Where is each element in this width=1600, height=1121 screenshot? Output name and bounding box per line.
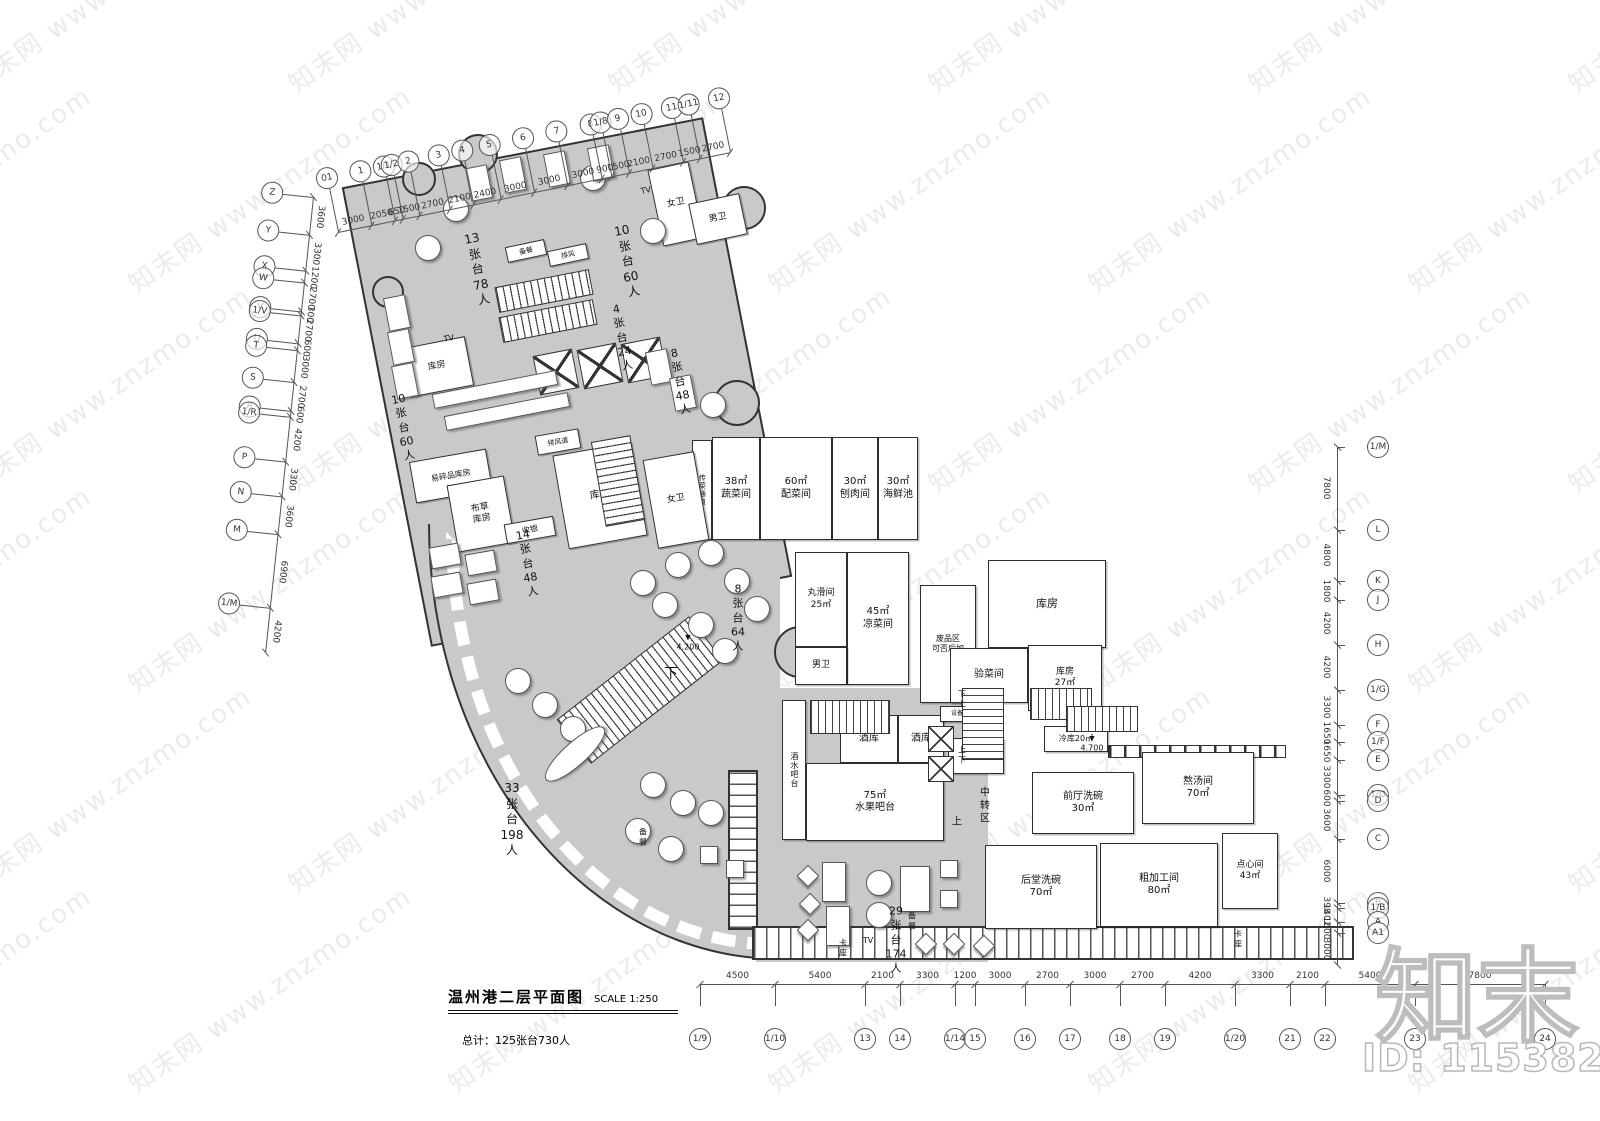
- table-r: [822, 862, 846, 902]
- grid-leader: [1337, 742, 1345, 743]
- plan-label: TV: [863, 936, 873, 946]
- room-seafood-pool: 30㎡ 海鲜池: [878, 437, 918, 540]
- plan-label: 备餐: [639, 828, 647, 849]
- room-garnish-room: 60㎡ 配菜间: [760, 437, 832, 540]
- table-c: [670, 790, 696, 816]
- room-back-dishwash: 后堂洗碗 70㎡: [985, 845, 1097, 929]
- watermark-text: 知末网 www.znzmo.com: [920, 0, 1218, 101]
- table-c: [640, 218, 666, 244]
- room-front-dishwash: 前厅洗碗 30㎡: [1032, 772, 1134, 834]
- dimension-value: 4200: [1321, 611, 1331, 634]
- room-storage-upper-right: 库房: [988, 560, 1106, 648]
- watermark-text: 知末网 www.znzmo.com: [0, 676, 258, 900]
- table-c: [532, 692, 558, 718]
- watermark-text: 知末网 www.znzmo.com: [1560, 676, 1600, 900]
- dimension-value: 3300: [1251, 971, 1274, 981]
- plan-label: 备餐: [908, 912, 916, 933]
- site-logo: 知末: [1375, 948, 1579, 1050]
- dimension-value: 2100: [1296, 971, 1319, 981]
- grid-leader: [975, 984, 976, 1006]
- dimension-value: 7800: [1321, 477, 1331, 500]
- title-underline-2: [448, 1013, 678, 1014]
- grid-leader: [1025, 984, 1026, 1006]
- plan-label: TV: [640, 185, 652, 197]
- dimension-value: 4200: [1321, 656, 1331, 679]
- dimension-value: 1800: [1321, 579, 1331, 602]
- image-id-label: ID: 1153825906: [1362, 1036, 1600, 1080]
- dimension-value: 5400: [809, 971, 832, 981]
- watermark-text: 知末网 www.znzmo.com: [1240, 276, 1538, 500]
- grid-leader: [1337, 839, 1345, 840]
- plan-label: 4.200: [677, 633, 700, 654]
- grid-leader: [700, 984, 701, 1006]
- grid-bubble: J: [1367, 589, 1389, 611]
- grid-leader: [1337, 725, 1345, 726]
- dimension-value: 600: [300, 339, 312, 357]
- dimension-value: 3000: [1321, 938, 1331, 961]
- dimension-value: 2700: [1036, 971, 1059, 981]
- watermark-text: 知末网 www.znzmo.com: [280, 0, 578, 101]
- grid-bubble: 13: [854, 1028, 876, 1050]
- grid-leader: [1337, 933, 1345, 934]
- grid-leader: [1325, 984, 1326, 1006]
- table-c: [652, 592, 678, 618]
- dimension-value: 600: [1321, 789, 1331, 806]
- grid-leader: [1337, 581, 1345, 582]
- dimension-value: 1000: [1321, 916, 1331, 939]
- plan-label: 上 下: [958, 746, 966, 767]
- plan-label: 上: [952, 816, 962, 829]
- drawing-title: 温州港二层平面图: [448, 988, 584, 1006]
- dimension-value: 6000: [1321, 860, 1331, 883]
- table-c: [744, 596, 770, 622]
- watermark-text: 知末网 www.znzmo.com: [1240, 0, 1538, 101]
- table-c: [625, 818, 651, 844]
- plan-label: 中转区: [980, 787, 990, 826]
- table-c: [630, 570, 656, 596]
- dimension-value: 4800: [1321, 544, 1331, 567]
- watermark-text: 知末网 www.znzmo.com: [1080, 476, 1378, 700]
- dimension-value: 2700: [1131, 971, 1154, 981]
- table-c: [658, 836, 684, 862]
- grid-leader: [1337, 908, 1345, 909]
- watermark-text: 知末网 www.znzmo.com: [0, 0, 258, 101]
- grid-bubble: 1/20: [1224, 1028, 1246, 1050]
- room-mens-toilet-kitchen: 男卫: [795, 647, 847, 685]
- room-vegetable-room: 38㎡ 蔬菜间: [712, 437, 760, 540]
- plan-label: 29张台 174人: [886, 904, 907, 975]
- watermark-text: 知末网 www.znzmo.com: [1240, 676, 1538, 900]
- dimension-value: 1650: [1321, 739, 1331, 762]
- watermark-text: 知末网 www.znzmo.com: [600, 0, 898, 101]
- table-c: [698, 540, 724, 566]
- grid-leader: [955, 984, 956, 1006]
- table-c: [415, 235, 441, 261]
- room-meatball-room: 丸滑间 25㎡: [795, 552, 847, 647]
- grid-line: [1337, 447, 1338, 965]
- grid-bubble: 1/14: [944, 1028, 966, 1050]
- table-c: [505, 668, 531, 694]
- room-rough-processing: 粗加工间 80㎡: [1100, 843, 1218, 927]
- grid-leader: [775, 984, 776, 1006]
- dimension-value: 3000: [1084, 971, 1107, 981]
- table-q: [940, 860, 958, 878]
- grid-bubble: 16: [1014, 1028, 1036, 1050]
- elevator-shaft: [928, 726, 954, 752]
- table-c: [665, 552, 691, 578]
- stair: [810, 700, 890, 734]
- drawing-scale: SCALE 1:250: [594, 994, 658, 1005]
- stair: [1066, 706, 1138, 732]
- grid-bubble: 17: [1059, 1028, 1081, 1050]
- table-q: [700, 846, 718, 864]
- dimension-value: 4200: [1189, 971, 1212, 981]
- grid-leader: [1337, 922, 1345, 923]
- title-underline: [448, 1010, 678, 1011]
- grid-leader: [1337, 600, 1345, 601]
- grid-bubble: 1/M: [1367, 436, 1389, 458]
- grid-bubble: E: [1367, 749, 1389, 771]
- grid-leader: [1235, 984, 1236, 1006]
- plan-label: 下: [664, 665, 678, 683]
- grid-bubble: 14: [889, 1028, 911, 1050]
- grid-bubble: 15: [964, 1028, 986, 1050]
- table-q: [726, 860, 744, 878]
- grid-leader: [1120, 984, 1121, 1006]
- dimension-value: 3300: [1321, 696, 1331, 719]
- stair: [962, 688, 1004, 760]
- total-count-note: 总计：125张台730人: [462, 1032, 678, 1048]
- watermark-text: 知末网 www.znzmo.com: [1560, 0, 1600, 101]
- table-c: [698, 800, 724, 826]
- room-drinks-bar: 酒水吧台: [782, 700, 806, 840]
- watermark-text: 知末网 www.znzmo.com: [120, 876, 418, 1100]
- watermark-text: 知末网 www.znzmo.com: [0, 76, 98, 300]
- dimension-value: 3000: [989, 971, 1012, 981]
- grid-leader: [1337, 795, 1345, 796]
- grid-leader: [1337, 801, 1345, 802]
- watermark-text: 知末网 www.znzmo.com: [1080, 76, 1378, 300]
- plan-label: 卡座: [1234, 930, 1242, 951]
- dimension-value: 2100: [871, 971, 894, 981]
- plan-label: 33张台 198人: [501, 781, 524, 859]
- dimension-value: 600: [293, 405, 305, 423]
- watermark-text: 知末网 www.znzmo.com: [1400, 76, 1600, 300]
- grid-bubble: 21: [1279, 1028, 1301, 1050]
- grid-leader: [1337, 690, 1345, 691]
- room-fruit-bar: 75㎡ 水果吧台: [806, 763, 944, 841]
- room-pastry-room: 点心间 43㎡: [1222, 833, 1278, 909]
- dimension-value: 3300: [916, 971, 939, 981]
- grid-leader: [1290, 984, 1291, 1006]
- grid-leader: [1337, 760, 1345, 761]
- plan-label: 4.700: [1081, 734, 1104, 755]
- elevator-shaft: [928, 756, 954, 782]
- grid-bubble: 1/10: [764, 1028, 786, 1050]
- grid-bubble: 1/9: [689, 1028, 711, 1050]
- watermark-text: 知末网 www.znzmo.com: [0, 276, 258, 500]
- table-q: [940, 890, 958, 908]
- grid-bubble: 18: [1109, 1028, 1131, 1050]
- grid-leader: [1337, 530, 1345, 531]
- cad-drawing-canvas: 知末网 www.znzmo.com知末网 www.znzmo.com知末网 ww…: [0, 0, 1600, 1121]
- grid-bubble: H: [1367, 634, 1389, 656]
- table-c: [700, 392, 726, 418]
- watermark-text: 知末网 www.znzmo.com: [0, 476, 98, 700]
- grid-bubble: 22: [1314, 1028, 1336, 1050]
- plan-label: 8张台 64人: [731, 582, 745, 653]
- room-cold-dish-room: 45㎡ 凉菜间: [847, 552, 909, 685]
- room-meat-slicing-room: 30㎡ 刨肉间: [832, 437, 878, 540]
- dimension-value: 4500: [726, 971, 749, 981]
- grid-leader: [1337, 645, 1345, 646]
- plan-label: 卡座: [839, 939, 847, 960]
- railed-walkway: [728, 770, 758, 930]
- watermark-text: 知末网 www.znzmo.com: [120, 476, 418, 700]
- plan-label: TV: [443, 333, 455, 345]
- grid-leader: [1070, 984, 1071, 1006]
- watermark-text: 知末网 www.znzmo.com: [1400, 476, 1600, 700]
- grid-bubble: 19: [1154, 1028, 1176, 1050]
- table-c: [640, 772, 666, 798]
- room-linen-storage: 布草 库房: [447, 475, 516, 552]
- dimension-value: 3600: [1321, 809, 1331, 832]
- table-c: [866, 870, 892, 896]
- watermark-text: 知末网 www.znzmo.com: [760, 76, 1058, 300]
- grid-leader: [1165, 984, 1166, 1006]
- grid-bubble: L: [1367, 519, 1389, 541]
- room-soup-room: 熬汤间 70㎡: [1142, 752, 1254, 824]
- dimension-value: 1200: [954, 971, 977, 981]
- plan-label: 下 上: [958, 690, 966, 711]
- watermark-text: 知末网 www.znzmo.com: [0, 876, 98, 1100]
- grid-leader: [900, 984, 901, 1006]
- title-block: 温州港二层平面图SCALE 1:250 总计：125张台730人: [448, 986, 678, 1048]
- grid-leader: [1337, 447, 1345, 448]
- watermark-text: 知末网 www.znzmo.com: [1560, 276, 1600, 500]
- grid-bubble: 1/G: [1367, 679, 1389, 701]
- grid-leader: [865, 984, 866, 1006]
- grid-leader: [1337, 903, 1345, 904]
- watermark-text: 知末网 www.znzmo.com: [920, 276, 1218, 500]
- dimension-value: 3300: [1321, 766, 1331, 789]
